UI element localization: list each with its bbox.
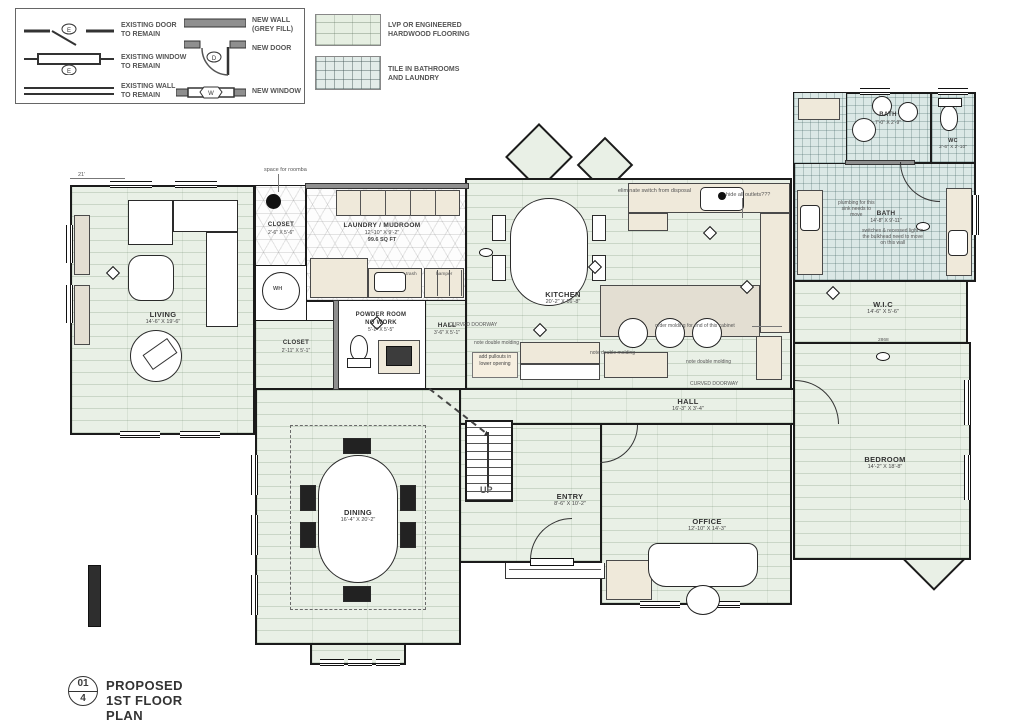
window-icon [120,431,160,438]
window-icon [110,181,152,188]
linen-shelf [798,98,840,120]
annotation-plumbing: plumbing for this sink needs to move [838,200,875,218]
room-dims: 14'-2" X 18'-8" [864,464,905,471]
hall-main-label-group: HALL 16'-3" X 3'-4" [672,397,704,413]
new-wall-powder [333,300,339,390]
room-name: HALL [672,397,704,406]
window-icon [66,225,73,263]
bay-window-icon [320,659,344,666]
window-icon [640,601,680,608]
room-name: LAUNDRY / MUDROOM [344,222,421,230]
floor-plan-drawing: WH add pullouts in lower opening [0,0,1024,722]
room-name: ENTRY [554,492,586,501]
room-dims: 16'-3" X 3'-4" [672,406,704,413]
powder-sink [386,346,412,366]
existing-tag [876,352,890,361]
dining-chair [400,522,416,548]
room-dims: 2'-11" X 5'-1" [282,348,310,354]
room-name: BEDROOM [864,455,905,464]
room-name: BATH [870,210,901,218]
dining-chair [300,522,316,548]
window-icon [964,455,971,500]
cubby-dividers [336,190,460,216]
bay-window-icon [376,659,400,666]
pullout-cabinet-note: add pullouts in lower opening [472,352,518,378]
dimension-line [70,178,125,179]
bath-sink-left [800,205,820,231]
stairs-up-label: UP [480,485,493,496]
annotation-switches: switches & recessed light in the bulkhea… [862,228,923,246]
room-dims: 14'-6" X 5'-6" [867,309,899,316]
room-name: OFFICE [688,517,726,526]
annotation-molding-2: note double molding [590,350,635,356]
window-icon [251,515,258,555]
laundry-sink [374,272,406,292]
sheet-number-bubble: 01 4 [68,676,98,706]
room-name: CLOSET [282,340,310,348]
room-dims: 3'-6" X 5'-1" [434,330,460,336]
annotation-disposal: eliminate switch from disposal [618,188,691,195]
sheet-total: 4 [69,692,97,705]
hall-cabinet [520,342,600,364]
drawing-title: PROPOSED 1ST FLOOR PLAN [102,678,189,722]
floor-plan-sheet: E EXISTING DOOR TO REMAIN E EXISTING WIN… [0,0,1024,722]
room-name: W.I.C [867,300,899,309]
annotation-hamper: hamper [436,272,452,278]
wic-label-group: W.I.C 14'-6" X 5'-6" [867,300,899,316]
leader-line [278,174,279,192]
annotation-trash: trash [406,272,417,278]
room-name: WC [939,138,967,145]
dining-chair [400,485,416,511]
chair [492,215,506,241]
office-desk [648,543,758,587]
annotation-curved-doorway-2: CURVED DOORWAY [690,381,738,387]
wc-toilet-icon [940,105,958,131]
window-icon [66,285,73,323]
coffee-table [128,255,174,301]
annotation-curved-doorway-1: CURVED DOORWAY [449,322,497,328]
annotation-molding-3: note double molding [686,359,731,365]
bath-small-label-group: BATH 7'-0" X 2'-9" [875,112,901,126]
living-label-group: LIVING 14'-6" X 19'-6" [146,310,181,326]
sheet-number: 01 [69,677,97,692]
wc-toilet-tank [938,98,962,107]
annotation-cabinet-order: order molding for end of this cabinet [655,323,735,329]
armchair [128,200,173,245]
bay-window-icon [348,659,372,666]
laundry-label-group: LAUNDRY / MUDROOM 12'-10" X 9'-2" 99.6 S… [344,222,421,244]
existing-tag [479,248,493,257]
office-closet [606,560,652,600]
bath-sink-right [948,230,968,256]
room-dims: 12'-10" X 14'-3" [688,526,726,533]
dining-chair [343,438,371,454]
room-note: NO WORK [356,320,407,328]
leader-line [752,326,782,327]
bath-main-label-group: BATH 14'-8" X 9'-11" [870,210,901,224]
room-dims: 7'-0" X 2'-9" [875,120,901,126]
office-label-group: OFFICE 12'-10" X 14'-3" [688,517,726,533]
room-bedroom [793,342,971,560]
room-closet-hall [255,320,337,390]
range [628,213,668,231]
room-dims: 8'-6" X 10'-2" [554,501,586,508]
faucet [718,192,726,200]
drawing-title-group: PROPOSED 1ST FLOOR PLAN SCALE 3/16" = 1'… [102,678,189,722]
room-dims: 20'-2" X 16'-8" [545,299,580,306]
laundry-bench [310,258,368,298]
living-builtin [74,285,90,345]
dining-chair [300,485,316,511]
room-name: POWDER ROOM [356,312,407,320]
room-dims: 2'-6" X 2'-10" [939,145,967,151]
sofa [173,200,238,232]
closet2-label-group: CLOSET 2'-11" X 5'-1" [282,340,310,354]
entry-label-group: ENTRY 8'-6" X 10'-2" [554,492,586,508]
hall-cabinet-lower [520,364,600,380]
room-name: BATH [875,112,901,120]
room-name: LIVING [146,310,181,319]
window-icon [180,431,220,438]
wc-label-group: WC 2'-6" X 2'-10" [939,138,967,151]
room-dims: 5'-1" X 5'-5" [356,327,407,333]
room-name: DINING [341,508,376,517]
new-wall-laundry [305,183,469,189]
office-chair [686,585,720,615]
chair [592,215,606,241]
roomba-dock [266,194,281,209]
room-dims: 14'-8" X 9'-11" [870,218,901,224]
annotation-roomba: space for roomba [264,167,307,174]
annotation-molding-1: note double molding [474,340,519,346]
window-icon [964,380,971,425]
kitchen-tall-cabinets [760,213,790,333]
annotation-door-size: 2868 [878,338,889,344]
window-icon [251,455,258,495]
dining-chair [343,586,371,602]
room-dims: 12'-10" X 9'-2" [344,230,421,237]
room-dims: 16'-4" X 20'-2" [341,517,376,524]
bath-vanity-left [797,190,823,275]
annotation-outlets: hide all outlets??? [726,192,770,199]
water-heater-label: WH [273,286,282,293]
room-dims: 2'-6" X 5'-6" [268,230,294,236]
chair [492,255,506,281]
exterior-object [88,565,101,627]
room-dims: 14'-6" X 19'-6" [146,319,181,326]
room-name: KITCHEN [545,290,580,299]
stairs-arrow-line [487,432,489,487]
powder-label-group: POWDER ROOM NO WORK 5'-1" X 5'-5" [356,312,407,333]
window-icon [251,575,258,615]
hall-cabinet-3 [756,336,782,380]
dining-label-group: DINING 16'-4" X 20'-2" [341,508,376,524]
living-builtin [74,215,90,275]
window-icon [938,88,968,95]
room-area: 99.6 SQ FT [344,237,421,244]
bedroom-label-group: BEDROOM 14'-2" X 18'-8" [864,455,905,471]
kitchen-label-group: KITCHEN 20'-2" X 16'-8" [545,290,580,306]
leader-line [742,198,743,218]
window-icon [175,181,217,188]
window-icon [972,195,979,235]
room-name: CLOSET [268,222,294,230]
room-hall-small [425,300,469,390]
closet1-label-group: CLOSET 2'-6" X 5'-6" [268,222,294,236]
shower-fixture [852,118,876,142]
sofa-chaise [206,232,238,327]
toilet-tank [347,358,371,368]
window-icon [860,88,890,95]
island-stool [618,318,648,348]
